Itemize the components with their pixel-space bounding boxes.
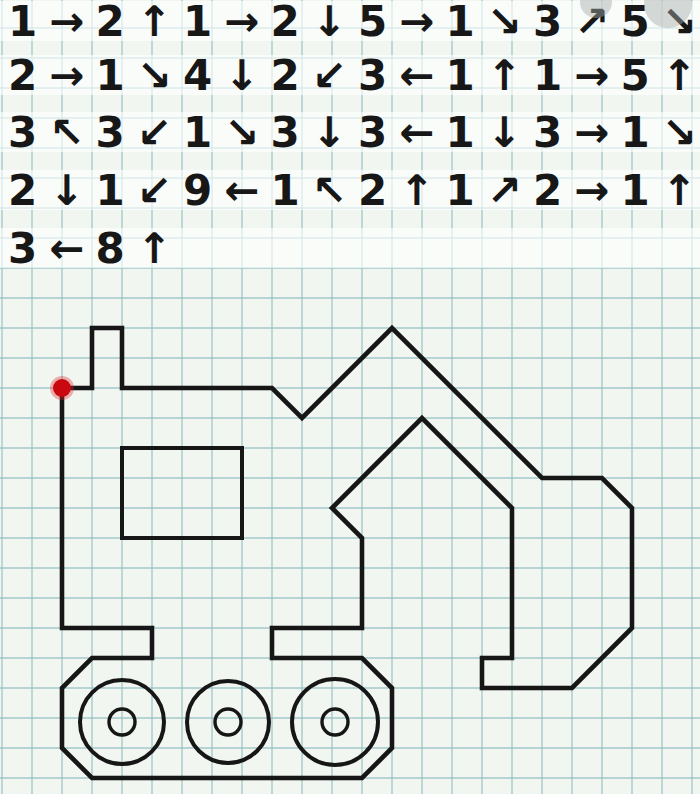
down-right-arrow-icon: ↘ xyxy=(224,108,259,157)
graphic-dictation-worksheet: 1→2↑1→2↓5→1↘3↗5↘2→1↘4↓2↙3←1↑1→5↑3↖3↙1↘3↓… xyxy=(0,0,700,794)
step-count: 1 xyxy=(183,108,212,157)
step-count: 1 xyxy=(96,166,125,215)
step-count: 1 xyxy=(8,0,37,46)
step-count: 1 xyxy=(621,166,650,215)
down-arrow-icon: ↓ xyxy=(487,108,522,157)
right-arrow-icon: → xyxy=(224,0,259,46)
step-count: 1 xyxy=(271,166,300,215)
step-count: 1 xyxy=(621,108,650,157)
right-arrow-icon: → xyxy=(399,0,434,46)
step-count: 5 xyxy=(358,0,387,46)
step-count: 3 xyxy=(8,224,37,273)
left-arrow-icon: ← xyxy=(399,51,434,100)
step-count: 3 xyxy=(8,108,37,157)
step-count: 1 xyxy=(96,51,125,100)
step-count: 1 xyxy=(446,0,475,46)
step-count: 8 xyxy=(96,224,125,273)
worksheet-canvas: 1→2↑1→2↓5→1↘3↗5↘2→1↘4↓2↙3←1↑1→5↑3↖3↙1↘3↓… xyxy=(0,0,700,794)
step-count: 2 xyxy=(271,51,300,100)
step-count: 3 xyxy=(271,108,300,157)
down-left-arrow-icon: ↙ xyxy=(137,108,172,157)
down-right-arrow-icon: ↘ xyxy=(137,51,172,100)
up-right-arrow-icon: ↗ xyxy=(487,166,522,215)
step-count: 2 xyxy=(271,0,300,46)
step-count: 2 xyxy=(8,51,37,100)
step-count: 1 xyxy=(183,0,212,46)
up-arrow-icon: ↑ xyxy=(662,51,697,100)
step-count: 3 xyxy=(358,51,387,100)
step-count: 1 xyxy=(446,51,475,100)
step-count: 2 xyxy=(8,166,37,215)
step-count: 2 xyxy=(358,166,387,215)
up-arrow-icon: ↑ xyxy=(487,51,522,100)
step-count: 1 xyxy=(533,51,562,100)
down-right-arrow-icon: ↘ xyxy=(487,0,522,46)
left-arrow-icon: ← xyxy=(399,108,434,157)
left-arrow-icon: ← xyxy=(49,224,84,273)
right-arrow-icon: → xyxy=(49,0,84,46)
right-arrow-icon: → xyxy=(574,108,609,157)
up-arrow-icon: ↑ xyxy=(137,0,172,46)
up-arrow-icon: ↑ xyxy=(137,224,172,273)
down-right-arrow-icon: ↘ xyxy=(662,108,697,157)
down-arrow-icon: ↓ xyxy=(49,166,84,215)
right-arrow-icon: → xyxy=(49,51,84,100)
step-count: 1 xyxy=(446,166,475,215)
right-arrow-icon: → xyxy=(574,166,609,215)
start-dot xyxy=(50,376,74,400)
down-arrow-icon: ↓ xyxy=(312,0,347,46)
down-left-arrow-icon: ↙ xyxy=(137,166,172,215)
start-dot-core xyxy=(53,379,71,397)
down-arrow-icon: ↓ xyxy=(312,108,347,157)
step-count: 5 xyxy=(621,51,650,100)
down-left-arrow-icon: ↙ xyxy=(312,51,347,100)
right-arrow-icon: → xyxy=(574,51,609,100)
step-count: 3 xyxy=(533,108,562,157)
up-arrow-icon: ↑ xyxy=(399,166,434,215)
step-count: 1 xyxy=(446,108,475,157)
step-count: 3 xyxy=(96,108,125,157)
step-count: 2 xyxy=(533,166,562,215)
left-arrow-icon: ← xyxy=(224,166,259,215)
up-left-arrow-icon: ↖ xyxy=(49,108,84,157)
step-count: 9 xyxy=(183,166,212,215)
step-count: 4 xyxy=(183,51,212,100)
step-count: 2 xyxy=(96,0,125,46)
step-count: 3 xyxy=(358,108,387,157)
up-left-arrow-icon: ↖ xyxy=(312,166,347,215)
step-count: 3 xyxy=(533,0,562,46)
down-arrow-icon: ↓ xyxy=(224,51,259,100)
up-arrow-icon: ↑ xyxy=(662,166,697,215)
